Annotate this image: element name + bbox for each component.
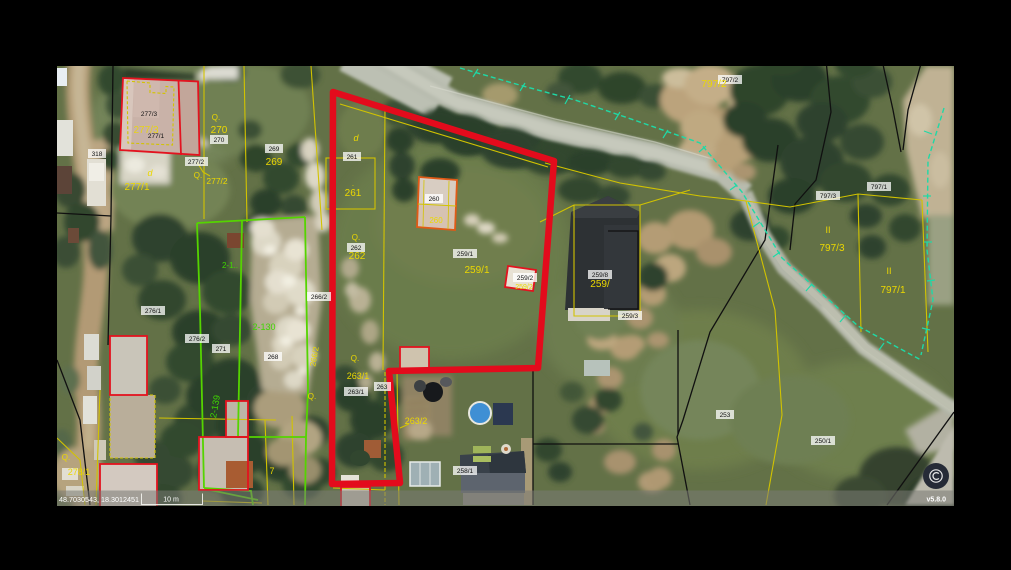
svg-text:797/1: 797/1 — [871, 184, 888, 191]
svg-text:250/1: 250/1 — [815, 438, 832, 445]
svg-text:263/1: 263/1 — [347, 371, 370, 381]
svg-text:10 m: 10 m — [163, 497, 179, 504]
svg-text:797/1: 797/1 — [880, 285, 905, 296]
svg-text:Q.: Q. — [351, 354, 359, 363]
svg-text:Q.: Q. — [212, 113, 220, 122]
svg-text:261: 261 — [345, 188, 362, 199]
svg-text:v5.8.0: v5.8.0 — [927, 497, 947, 504]
svg-text:318: 318 — [92, 151, 103, 158]
svg-text:258/1: 258/1 — [457, 468, 474, 475]
svg-text:II: II — [886, 266, 891, 276]
svg-text:270: 270 — [211, 125, 228, 136]
svg-text:277/3: 277/3 — [133, 125, 158, 136]
svg-text:277/2: 277/2 — [206, 176, 228, 186]
svg-text:270: 270 — [214, 137, 225, 144]
svg-text:797/3: 797/3 — [820, 193, 837, 200]
svg-text:2-1..: 2-1.. — [222, 261, 238, 270]
svg-text:271: 271 — [216, 346, 227, 353]
svg-text:263: 263 — [377, 384, 388, 391]
svg-text:276/1: 276/1 — [145, 308, 162, 315]
svg-text:276/2: 276/2 — [189, 336, 206, 343]
svg-text:2-130: 2-130 — [252, 322, 275, 332]
svg-text:260: 260 — [429, 196, 440, 203]
svg-text:253: 253 — [720, 412, 731, 419]
svg-text:260: 260 — [429, 216, 443, 225]
svg-text:259/2: 259/2 — [517, 275, 534, 282]
svg-text:259/1: 259/1 — [457, 251, 474, 258]
svg-text:268: 268 — [268, 354, 279, 361]
svg-text:263/2: 263/2 — [405, 416, 428, 426]
svg-text:277/3: 277/3 — [141, 111, 158, 118]
svg-text:48.7030543, 18.3012451: 48.7030543, 18.3012451 — [59, 495, 139, 504]
svg-text:797/2: 797/2 — [701, 79, 726, 90]
svg-text:Q.: Q. — [352, 233, 360, 242]
svg-text:259/8: 259/8 — [592, 272, 609, 279]
svg-text:Q.: Q. — [62, 453, 70, 462]
svg-text:Q.: Q. — [308, 392, 316, 401]
svg-text:Q.: Q. — [194, 171, 202, 180]
svg-text:.: . — [352, 181, 354, 188]
svg-text:277/2: 277/2 — [188, 159, 205, 166]
svg-text:263/1: 263/1 — [348, 389, 365, 396]
svg-text:261: 261 — [347, 154, 358, 161]
svg-text:259/3: 259/3 — [622, 313, 639, 320]
svg-text:262: 262 — [349, 251, 366, 262]
svg-text:259/: 259/ — [590, 279, 610, 290]
svg-text:277/1: 277/1 — [124, 182, 149, 193]
svg-text:266/2: 266/2 — [311, 294, 328, 301]
svg-text:269: 269 — [269, 146, 280, 153]
svg-text:7: 7 — [269, 466, 274, 476]
svg-text:278/1: 278/1 — [68, 467, 91, 477]
svg-text:II: II — [825, 225, 830, 235]
svg-text:797/3: 797/3 — [819, 243, 844, 254]
svg-text:259/1: 259/1 — [464, 265, 489, 276]
svg-text:269: 269 — [266, 157, 283, 168]
svg-text:259/2: 259/2 — [515, 284, 533, 291]
